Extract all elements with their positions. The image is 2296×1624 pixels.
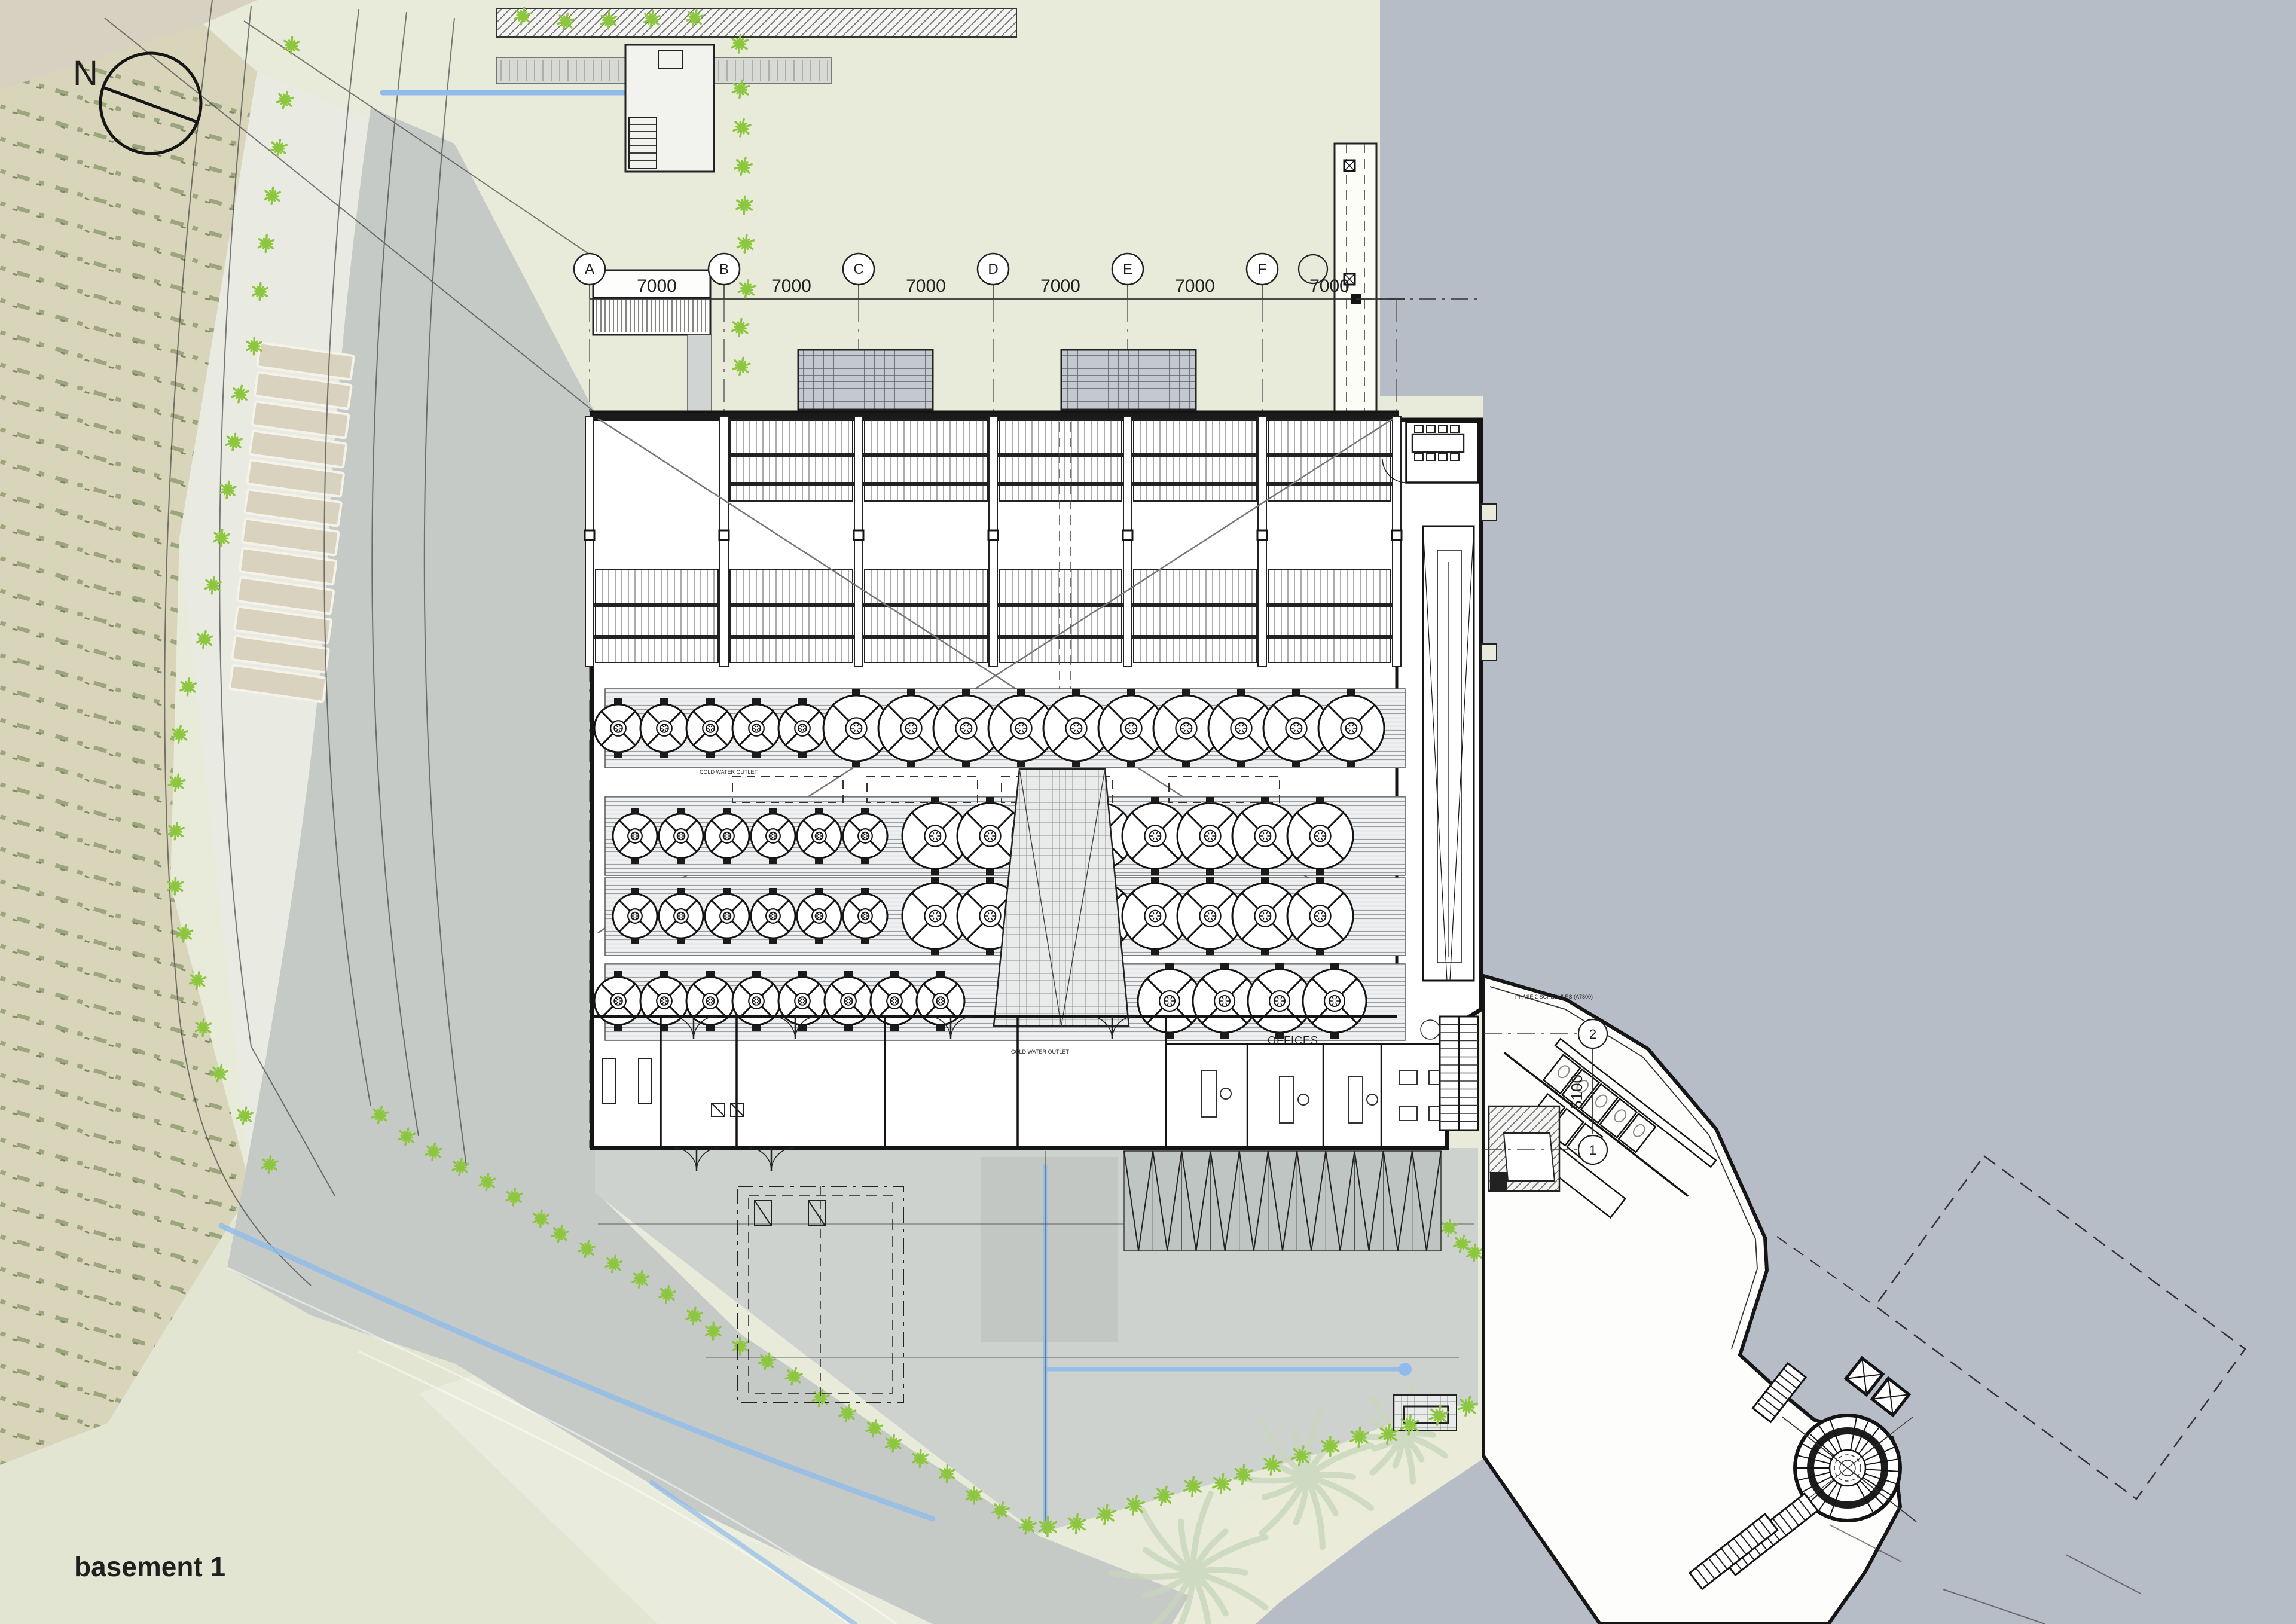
column-strip — [1393, 416, 1401, 666]
grid-bubble-label: 1 — [1589, 1143, 1596, 1158]
column-strip — [585, 416, 594, 666]
dimension-label: 7000 — [1309, 276, 1349, 296]
grid-bubble-label: A — [585, 261, 594, 277]
column-marker — [585, 530, 594, 540]
entry-kiosk — [625, 45, 714, 172]
dimension-label: 7000 — [1175, 276, 1215, 296]
column-strip — [854, 416, 863, 666]
grid-bubble-label: B — [719, 261, 729, 277]
column-strip — [989, 416, 997, 666]
dimension-label: 7000 — [771, 276, 811, 296]
wing-ramp — [1489, 1106, 1559, 1191]
phase-note: PHASE 2 SCHEDULES (A7800) — [1515, 994, 1593, 1000]
offices-label: OFFICES — [1268, 1034, 1318, 1046]
column-strip — [1258, 416, 1266, 666]
column-marker — [1392, 530, 1402, 540]
grid-bubble-label: F — [1258, 261, 1267, 277]
grid-bubble-label: E — [1123, 261, 1132, 277]
column-marker — [1257, 530, 1267, 540]
plaza-dark-patch — [981, 1157, 1118, 1342]
column-marker — [854, 530, 863, 540]
grid-bubble-label: 2 — [1589, 1027, 1596, 1042]
north-label: N — [73, 54, 98, 93]
cold-water-label: COLD WATER OUTLET — [700, 769, 758, 775]
ramp-chevron-band — [1124, 1151, 1441, 1251]
retaining-wall-hatch — [496, 8, 1016, 37]
grid-bubble-label: C — [853, 261, 863, 277]
dimension-label: 7000 — [637, 276, 677, 296]
cold-water-label: COLD WATER OUTLET — [1011, 1049, 1070, 1055]
column-strip — [720, 416, 728, 666]
column-marker — [988, 530, 998, 540]
basement-floor-plan: ABCDEF700070007000700070007000 — [0, 0, 2296, 1624]
dimension-label: 7000 — [1040, 276, 1080, 296]
dimension-label: 5100 — [1568, 1074, 1586, 1109]
grid-bubble-label: D — [988, 261, 998, 277]
dimension-label: 7000 — [906, 276, 946, 296]
column-strip — [1123, 416, 1132, 666]
column-marker — [1123, 530, 1132, 540]
page-title: basement 1 — [74, 1551, 225, 1582]
column-marker — [719, 530, 729, 540]
